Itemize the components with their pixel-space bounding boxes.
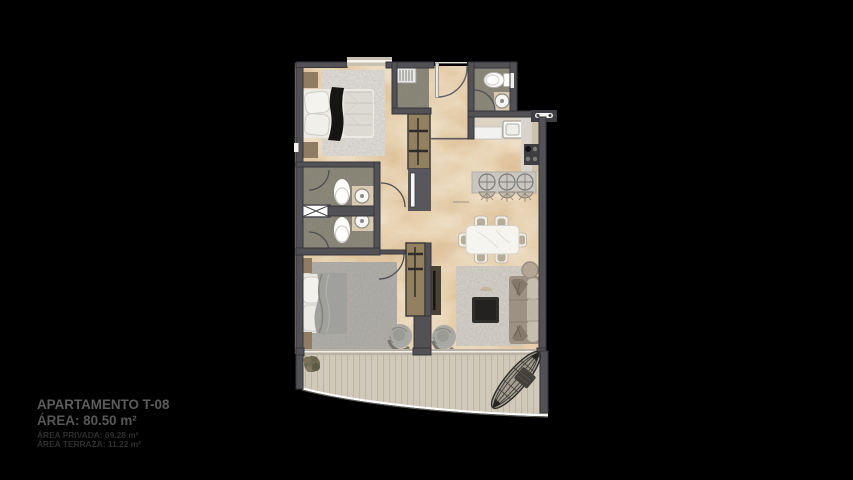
svg-text:ÁREA TERRAZA: 11.22 m²: ÁREA TERRAZA: 11.22 m² [37,438,141,449]
svg-text:ÁREA: 80.50 m²: ÁREA: 80.50 m² [37,413,137,428]
svg-text:APARTAMENTO T-08: APARTAMENTO T-08 [37,397,170,412]
